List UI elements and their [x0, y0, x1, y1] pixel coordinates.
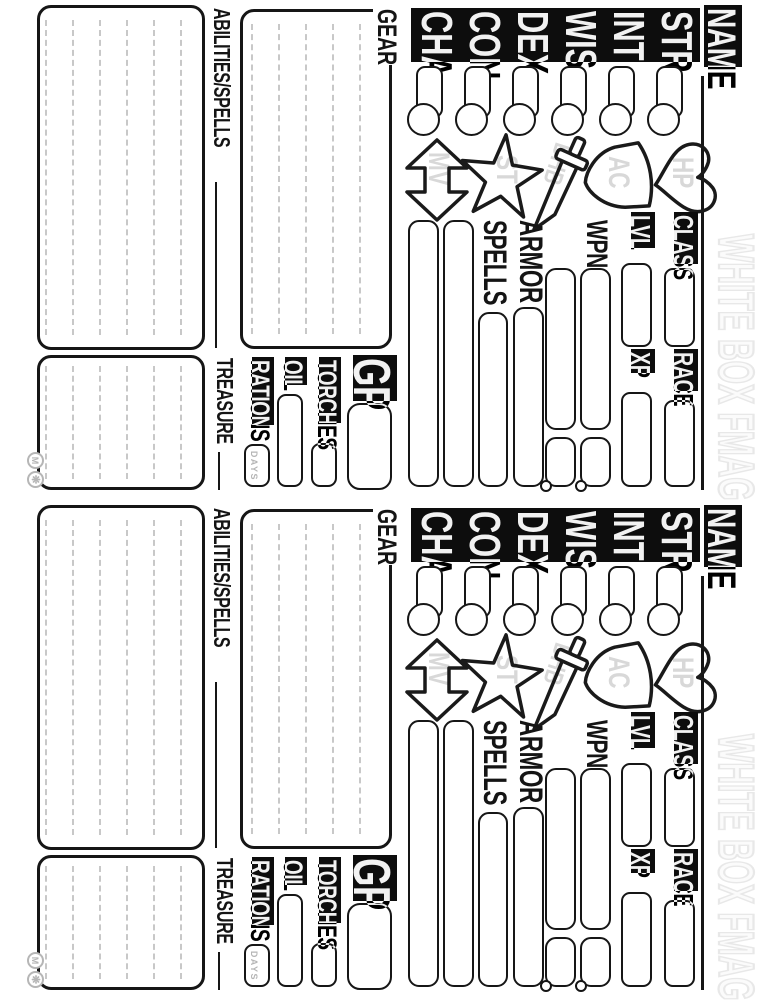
writing-line: [332, 24, 334, 334]
days-unit-label: DAYS: [249, 951, 259, 981]
name-label: NAME: [702, 8, 740, 124]
spells-label: SPELLS: [480, 720, 510, 805]
ability-label: DEX: [511, 511, 553, 574]
gp-field: [347, 403, 392, 490]
spells-line: [408, 220, 439, 487]
ability-modifier-circle: [455, 103, 488, 136]
ability-label: STR: [655, 511, 697, 573]
writing-line: [99, 20, 101, 335]
ability-label: WIS: [559, 511, 601, 569]
level-field: [621, 763, 652, 847]
publisher-stamp-icon: ❋: [27, 471, 44, 488]
header-line: [218, 452, 235, 490]
ability-modifier-circle: [647, 103, 680, 136]
oil-field: [277, 894, 303, 987]
armor-label: ARMOR: [516, 720, 546, 803]
spells-line: [443, 720, 474, 987]
treasure-label: TREASURE: [213, 358, 235, 444]
weapon-damage-box: [580, 937, 611, 987]
writing-line: [126, 20, 128, 335]
spells-line: [478, 312, 508, 487]
abilities-spells-box: [37, 5, 205, 350]
writing-line: [153, 520, 155, 835]
spells-line: [478, 812, 508, 987]
spells-line: [443, 220, 474, 487]
oil-field: [277, 394, 303, 487]
writing-line: [359, 24, 361, 334]
writing-line: [278, 524, 280, 834]
double-arrow-move-icon: [401, 136, 473, 224]
watermark: WHITE BOX FMAG: [711, 234, 761, 500]
header-line: [215, 682, 232, 848]
publisher-stamp-icon: M: [27, 452, 44, 469]
weapon-line: [580, 268, 611, 430]
writing-line: [180, 366, 182, 479]
gear-box: [240, 9, 392, 349]
writing-line: [72, 866, 74, 979]
weapon-label: WPN: [582, 720, 611, 768]
xp-field: [621, 392, 652, 487]
gp-field: [347, 903, 392, 990]
weapon-damage-box: [545, 937, 576, 987]
weapon-line: [545, 768, 576, 930]
xp-label: XP: [626, 352, 653, 388]
abilities-spells-label: ABILITIES/SPELLS: [210, 508, 232, 647]
weapon-damage-box: [580, 437, 611, 487]
spells-label: SPELLS: [480, 220, 510, 305]
treasure-label: TREASURE: [213, 858, 235, 944]
writing-line: [305, 524, 307, 834]
writing-line: [45, 20, 47, 335]
weapon-circle: [575, 980, 587, 992]
ability-modifier-circle: [551, 103, 584, 136]
ability-label: INT: [607, 511, 649, 561]
ability-modifier-circle: [407, 103, 440, 136]
ability-modifier-circle: [551, 603, 584, 636]
writing-line: [359, 524, 361, 834]
name-label: NAME: [702, 508, 740, 624]
gear-label: GEAR: [373, 509, 399, 565]
days-unit-label: DAYS: [249, 451, 259, 481]
spells-line: [408, 720, 439, 987]
abilities-spells-label: ABILITIES/SPELLS: [210, 8, 232, 147]
writing-line: [153, 20, 155, 335]
treasure-box: [37, 355, 205, 490]
writing-line: [126, 866, 128, 979]
class-field: [664, 768, 695, 847]
character-sheet: WHITE BOX FMAG NAME STR INT WIS DEX CON …: [0, 500, 773, 1000]
weapon-line: [545, 268, 576, 430]
treasure-header: TREASURE: [210, 358, 235, 490]
gear-box: [240, 509, 392, 849]
rations-field: DAYS: [244, 944, 270, 987]
character-sheet: WHITE BOX FMAG NAME STR INT WIS DEX CON …: [0, 0, 773, 500]
ability-modifier-circle: [503, 103, 536, 136]
ability-modifier-circle: [599, 603, 632, 636]
writing-line: [153, 366, 155, 479]
writing-line: [72, 520, 74, 835]
level-label: LVL: [626, 215, 653, 264]
treasure-box: [37, 855, 205, 990]
ability-label: STR: [655, 11, 697, 73]
writing-line: [45, 866, 47, 979]
weapon-label: WPN: [582, 220, 611, 268]
publisher-stamp-icon: M: [27, 952, 44, 969]
writing-line: [126, 366, 128, 479]
writing-line: [332, 524, 334, 834]
ability-label: WIS: [559, 11, 601, 69]
writing-line: [180, 866, 182, 979]
abilities-spells-header: ABILITIES/SPELLS: [207, 8, 232, 348]
ability-modifier-circle: [455, 603, 488, 636]
rations-field: DAYS: [244, 444, 270, 487]
abilities-spells-box: [37, 505, 205, 850]
ability-label: DEX: [511, 11, 553, 74]
writing-line: [45, 520, 47, 835]
header-line: [215, 182, 232, 348]
race-field: [664, 900, 695, 987]
writing-line: [126, 520, 128, 835]
armor-label: ARMOR: [516, 220, 546, 303]
weapon-damage-box: [545, 437, 576, 487]
xp-field: [621, 892, 652, 987]
level-label: LVL: [626, 715, 653, 764]
rotated-page: WHITE BOX FMAG NAME STR INT WIS DEX CON …: [0, 0, 773, 1000]
double-arrow-move-icon: [401, 636, 473, 724]
treasure-header: TREASURE: [210, 858, 235, 990]
writing-line: [99, 366, 101, 479]
xp-label: XP: [626, 852, 653, 888]
writing-line: [180, 20, 182, 335]
writing-line: [278, 24, 280, 334]
weapon-line: [580, 768, 611, 930]
writing-line: [153, 866, 155, 979]
abilities-spells-header: ABILITIES/SPELLS: [207, 508, 232, 848]
ability-label: INT: [607, 11, 649, 61]
gear-label: GEAR: [373, 9, 399, 65]
writing-line: [99, 866, 101, 979]
ability-modifier-circle: [647, 603, 680, 636]
race-field: [664, 400, 695, 487]
weapon-circle: [575, 480, 587, 492]
ability-modifier-circle: [599, 103, 632, 136]
writing-line: [180, 520, 182, 835]
writing-line: [251, 524, 253, 834]
page-canvas: WHITE BOX FMAG NAME STR INT WIS DEX CON …: [0, 0, 773, 1000]
writing-line: [305, 24, 307, 334]
class-field: [664, 268, 695, 347]
armor-line: [513, 307, 544, 487]
writing-line: [99, 520, 101, 835]
ability-modifier-circle: [407, 603, 440, 636]
writing-line: [72, 366, 74, 479]
level-field: [621, 263, 652, 347]
armor-line: [513, 807, 544, 987]
writing-line: [45, 366, 47, 479]
writing-line: [72, 20, 74, 335]
header-line: [218, 952, 235, 990]
publisher-stamp-icon: ❋: [27, 971, 44, 988]
watermark: WHITE BOX FMAG: [711, 734, 761, 1000]
writing-line: [251, 24, 253, 334]
ability-modifier-circle: [503, 603, 536, 636]
